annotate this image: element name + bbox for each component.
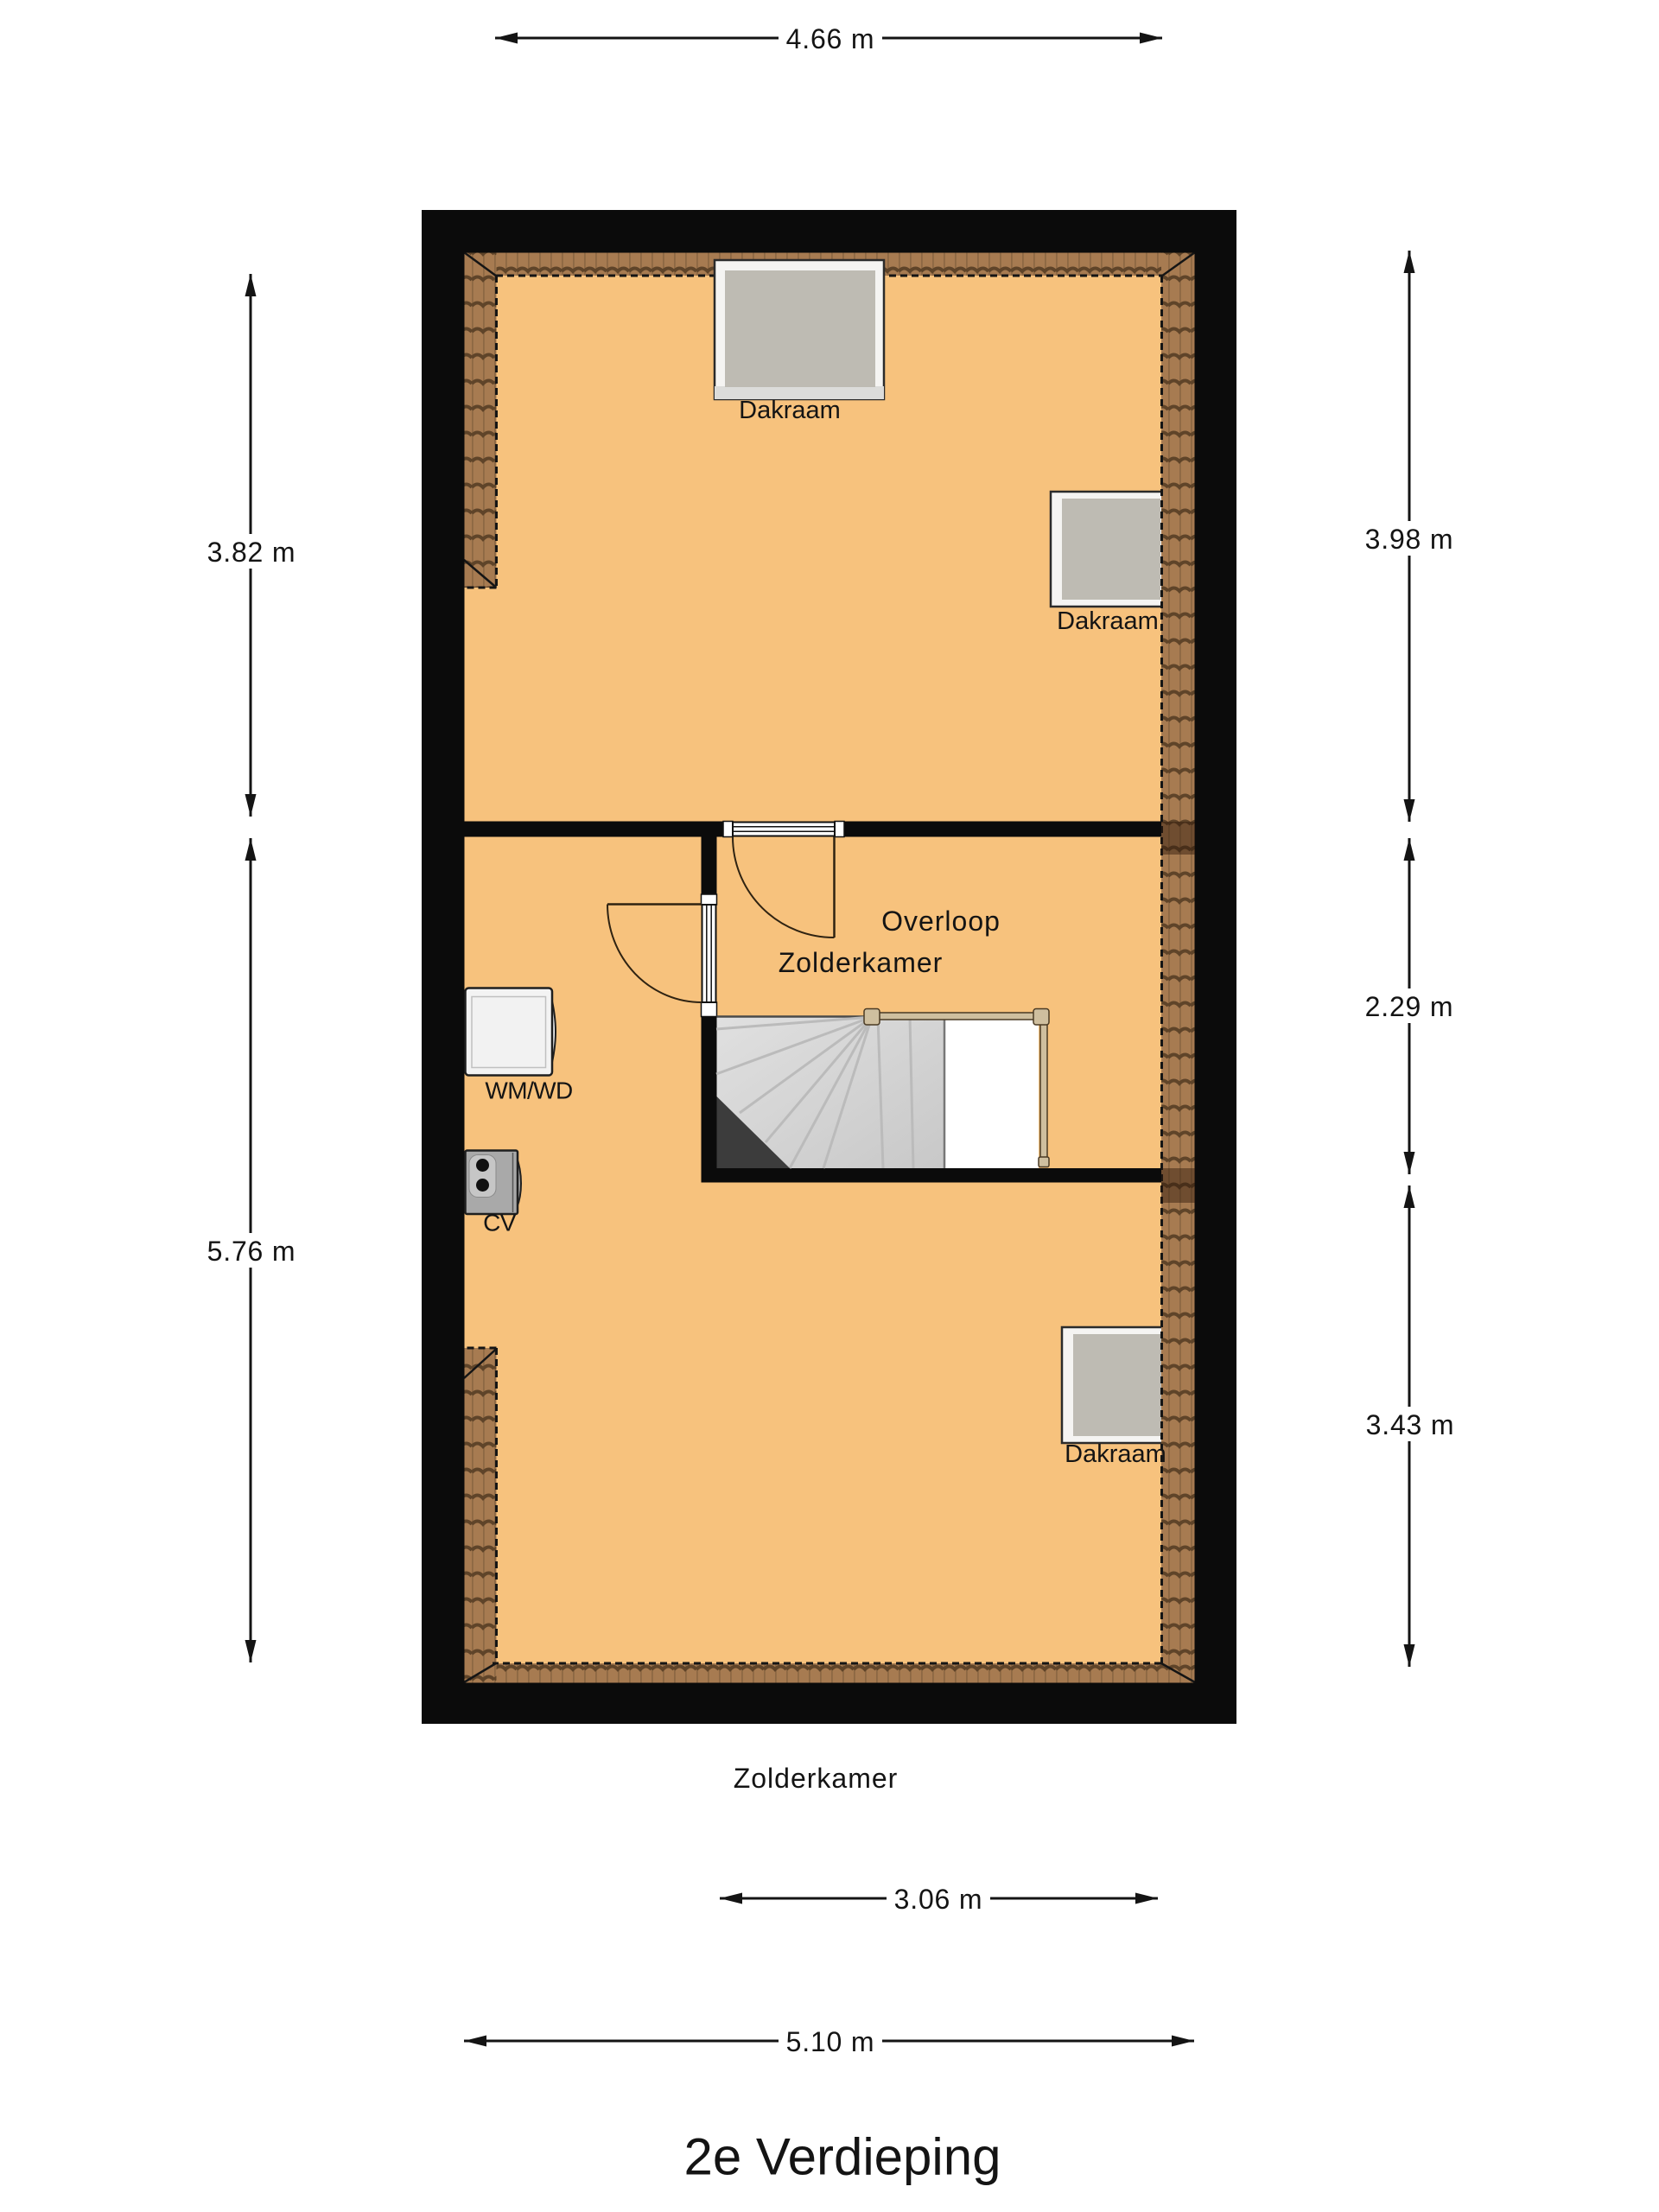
svg-text:3.06 m: 3.06 m [894,1884,983,1915]
svg-text:Zolderkamer: Zolderkamer [734,1763,899,1794]
svg-text:3.82 m: 3.82 m [207,537,296,568]
svg-text:3.98 m: 3.98 m [1365,524,1454,555]
svg-text:Dakraam: Dakraam [739,397,841,424]
svg-text:Dakraam: Dakraam [1057,607,1159,635]
svg-text:Zolderkamer: Zolderkamer [779,947,944,978]
svg-text:Dakraam: Dakraam [1065,1440,1166,1468]
svg-text:4.66 m: 4.66 m [786,23,875,54]
svg-text:CV: CV [483,1210,517,1236]
svg-text:WM/WD: WM/WD [485,1077,572,1104]
svg-text:Overloop: Overloop [881,906,1001,937]
svg-text:2e Verdieping: 2e Verdieping [684,2128,1001,2186]
svg-text:5.10 m: 5.10 m [786,2026,875,2057]
svg-text:5.76 m: 5.76 m [207,1236,296,1267]
svg-text:2.29 m: 2.29 m [1365,991,1454,1022]
svg-text:3.43 m: 3.43 m [1366,1409,1455,1440]
